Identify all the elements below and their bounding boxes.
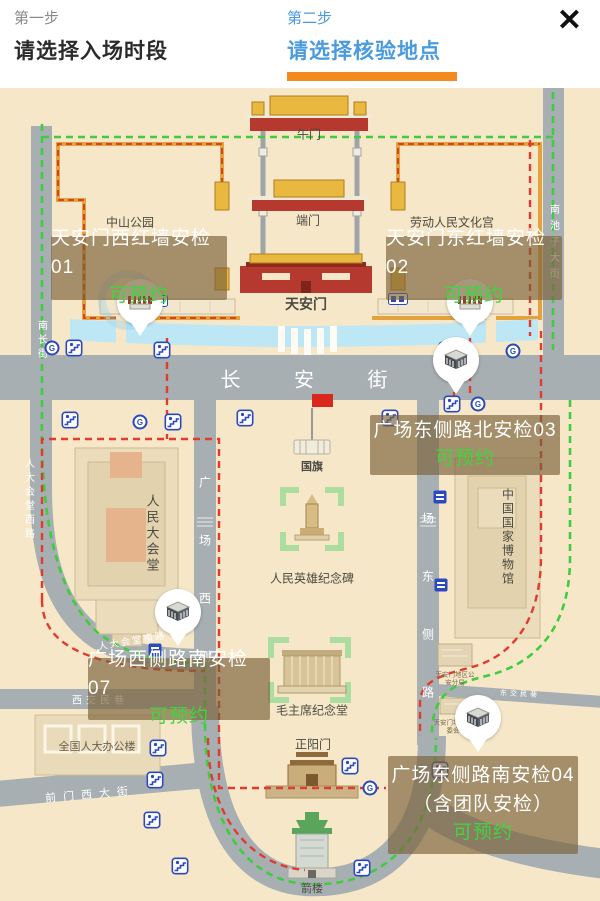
label-psb: 天安门地区公安分局 [435, 672, 475, 689]
step2-title: 请选择核验地点 [287, 35, 441, 65]
label-museum: 中国国家博物馆 [500, 488, 517, 586]
duanmen-gate [248, 180, 368, 211]
pedestrian-underpass-icon [354, 860, 371, 877]
museum-building [455, 458, 540, 638]
checkpoint-status: 可预约 [109, 282, 169, 311]
active-tab-underline [287, 72, 457, 81]
label-wumen: 午门 [297, 126, 321, 143]
tiananmen-gate [240, 254, 372, 293]
pedestrian-underpass-icon [342, 758, 359, 775]
security-building-icon [442, 349, 470, 371]
label-monument: 人民英雄纪念碑 [270, 570, 354, 587]
pedestrian-underpass-icon [237, 410, 254, 427]
facility-icon [434, 578, 448, 592]
svg-text:G: G [49, 344, 55, 353]
monument-icon [295, 494, 329, 540]
checkpoint-label-03[interactable]: 广场东侧路北安检03 可预约 [370, 415, 560, 475]
facility-icon [433, 490, 447, 504]
label-jianlou: 箭楼 [301, 880, 323, 896]
label-mao-memorial: 毛主席纪念堂 [276, 702, 348, 719]
subway-logo-icon: G [44, 340, 60, 356]
street-guangchang-dongce: 场东侧路 [420, 512, 437, 744]
street-changan: 长 安 街 [220, 364, 411, 393]
subway-logo-icon: G [362, 780, 378, 796]
checkpoint-pin-04[interactable] [455, 695, 501, 741]
svg-text:G: G [137, 418, 143, 427]
subway-logo-icon: G [470, 396, 486, 412]
checkpoint-name: 广场东侧路南安检04 [391, 762, 574, 791]
pedestrian-underpass-icon [144, 812, 161, 829]
checkpoint-label-02[interactable]: 天安门东红墙安检02 可预约 [386, 236, 562, 300]
svg-text:G: G [367, 784, 373, 793]
checkpoint-status: 可预约 [444, 282, 504, 311]
checkpoint-status: 可预约 [149, 703, 209, 732]
street-dongjiaominxiang: 东交民巷 [500, 688, 540, 700]
tab-step1[interactable]: 第一步 请选择入场时段 [14, 10, 168, 65]
subway-logo-icon: G [505, 343, 521, 359]
label-tiananmen: 天安门 [285, 294, 327, 314]
checkpoint-pin-03[interactable] [433, 337, 479, 383]
checkpoint-pin-07[interactable] [155, 589, 201, 635]
step-header: 第一步 请选择入场时段 第二步 请选择核验地点 ✕ [0, 0, 600, 88]
security-building-icon [164, 601, 192, 623]
checkpoint-label-07[interactable]: 广场西侧路南安检07 可预约 [88, 658, 270, 720]
checkpoint-name: 广场东侧路北安检03 [373, 417, 556, 446]
label-npc-office: 全国人大办公楼 [59, 738, 136, 754]
security-building-icon [464, 707, 492, 729]
subway-logo-icon: G [132, 414, 148, 430]
pedestrian-underpass-icon [150, 740, 167, 757]
pedestrian-underpass-icon [154, 342, 171, 359]
checkpoint-extra: （含团队安检） [413, 791, 553, 820]
checkpoint-label-04[interactable]: 广场东侧路南安检04 （含团队安检） 可预约 [388, 756, 578, 854]
pedestrian-underpass-icon [66, 340, 83, 357]
street-renda-xilu: 人大会堂西路 [21, 458, 36, 542]
close-icon[interactable]: ✕ [553, 2, 586, 40]
pedestrian-underpass-icon [444, 396, 461, 413]
label-great-hall: 人民大会堂 [143, 494, 162, 574]
svg-text:G: G [510, 347, 516, 356]
pedestrian-underpass-icon [147, 772, 164, 789]
checkpoint-status: 可预约 [435, 445, 495, 474]
tab-step2[interactable]: 第二步 请选择核验地点 [287, 10, 441, 65]
pedestrian-underpass-icon [165, 414, 182, 431]
svg-text:G: G [475, 400, 481, 409]
step2-caption: 第二步 [287, 10, 441, 28]
mao-memorial-building [278, 650, 346, 693]
national-flag [294, 394, 333, 454]
checkpoint-name: 天安门东红墙安检02 [386, 225, 562, 282]
label-duanmen: 端门 [296, 212, 320, 229]
label-guoqi: 国旗 [301, 458, 323, 474]
label-zhengyangmen: 正阳门 [295, 736, 331, 753]
pedestrian-underpass-icon [62, 412, 79, 429]
step1-title: 请选择入场时段 [14, 35, 168, 65]
checkpoint-name: 广场西侧路南安检07 [88, 646, 270, 703]
step1-caption: 第一步 [14, 10, 168, 28]
checkpoint-label-01[interactable]: 天安门西红墙安检01 可预约 [51, 236, 227, 300]
pedestrian-underpass-icon [172, 858, 189, 875]
tiananmen-map[interactable]: 午门 端门 中山公园 劳动人民文化宫 天安门 国旗 人民英雄纪念碑 毛主席纪念堂… [0, 88, 600, 901]
booking-dialog: 第一步 请选择入场时段 第二步 请选择核验地点 ✕ [0, 0, 600, 901]
checkpoint-status: 可预约 [453, 819, 513, 848]
checkpoint-name: 天安门西红墙安检01 [51, 225, 227, 282]
